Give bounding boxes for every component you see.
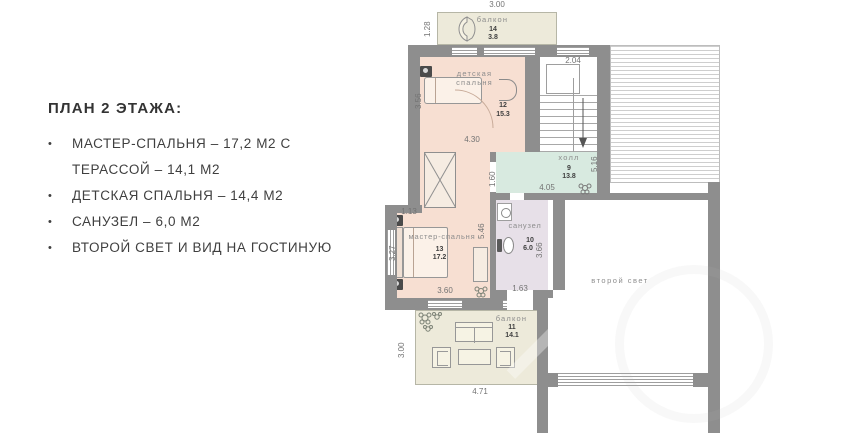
sink-icon — [497, 203, 512, 221]
wall-bath-top-b — [524, 193, 553, 200]
list-item: • МАСТЕР-СПАЛЬНЯ – 17,2 М2 С — [48, 131, 378, 157]
dim-nursery-depth: 3.56 — [414, 85, 423, 117]
armchair-right — [496, 347, 515, 368]
hall-label: холл — [551, 153, 587, 162]
dim-hall-entry: 1.60 — [488, 165, 497, 193]
pier-void-1 — [548, 373, 558, 387]
pier-void-3 — [693, 373, 708, 387]
nursery-label: детская спальня — [437, 69, 512, 87]
window-top-1 — [452, 47, 477, 55]
roof-hatch — [610, 45, 720, 183]
window-top-3 — [557, 47, 589, 55]
wall-left-upper — [408, 45, 420, 205]
list-item-text: САНУЗЕЛ – 6,0 М2 — [72, 209, 200, 235]
list-item-continuation: ТЕРАССОЙ – 14,1 М2 — [48, 157, 378, 183]
master-area: 17.2 — [427, 254, 452, 262]
floor-plan: балкон 14 3.8 детская спальня 12 15.3 хо… — [385, 0, 745, 442]
wall-void-left — [537, 298, 548, 433]
dim-balcony-bottom-depth: 3.00 — [397, 335, 406, 365]
bullet-icon: • — [48, 235, 72, 261]
window-top-2 — [484, 47, 535, 55]
wall-bath-top-a — [496, 193, 510, 200]
hall-area: 13.8 — [557, 173, 581, 181]
door-bath-balcony — [507, 290, 533, 310]
plant-icon — [473, 283, 489, 299]
stair-divider — [573, 78, 574, 152]
door-swing-arc — [453, 88, 495, 132]
feature-list: • МАСТЕР-СПАЛЬНЯ – 17,2 М2 С ТЕРАССОЙ – … — [48, 131, 378, 261]
sofa — [455, 322, 493, 342]
dim-balcony-bottom-width: 4.71 — [455, 387, 505, 396]
dim-nursery-width: 4.30 — [442, 135, 502, 144]
dim-bath-exit: 1.63 — [502, 284, 538, 293]
balcony-bottom-number: 11 — [500, 324, 524, 332]
wall-nursery-stairs — [525, 57, 540, 152]
bath-label: санузел — [499, 221, 551, 230]
balcony-top-area: 3.8 — [481, 34, 505, 42]
dim-hall-depth: 5.16 — [590, 148, 599, 180]
balcony-top-label: балкон — [470, 15, 515, 24]
page-title: ПЛАН 2 ЭТАЖА: — [48, 100, 378, 117]
armchair-left — [432, 347, 451, 368]
dim-master-height: 5.46 — [477, 216, 486, 246]
bullet-icon: • — [48, 183, 72, 209]
wall-corridor-hall-a — [490, 152, 496, 162]
list-item: • ДЕТСКАЯ СПАЛЬНЯ – 14,4 М2 — [48, 183, 378, 209]
dim-master-width: 3.60 — [425, 286, 465, 295]
stair-landing — [546, 64, 580, 94]
coffee-table — [458, 349, 491, 365]
stair-arrow-icon — [577, 98, 589, 148]
dim-stair-width: 2.04 — [555, 56, 591, 65]
dim-balcony-top-depth: 1.28 — [423, 14, 432, 44]
balcony-bottom-label: балкон — [489, 314, 534, 323]
balcony-top-number: 14 — [481, 26, 505, 34]
wall-right — [708, 182, 720, 433]
master-label: мастер-спальня — [397, 232, 487, 241]
dim-hall-width: 4.05 — [522, 183, 572, 192]
master-dresser — [473, 247, 488, 282]
list-item-text: ДЕТСКАЯ СПАЛЬНЯ – 14,4 М2 — [72, 183, 283, 209]
balcony-bottom-area: 14.1 — [500, 332, 524, 340]
bullet-icon: • — [48, 209, 72, 235]
list-item: • ВТОРОЙ СВЕТ И ВИД НА ГОСТИНУЮ — [48, 235, 378, 261]
nursery-area: 15.3 — [491, 111, 515, 119]
nursery-number: 12 — [491, 102, 515, 110]
master-number: 13 — [427, 246, 452, 254]
dim-master-depth: 3.27 — [388, 238, 397, 268]
info-panel: ПЛАН 2 ЭТАЖА: • МАСТЕР-СПАЛЬНЯ – 17,2 М2… — [48, 100, 378, 261]
wardrobe-icon — [424, 152, 456, 208]
dim-master-step: 1.13 — [393, 207, 425, 216]
nursery-nightstand — [420, 66, 432, 77]
void-label: второй свет — [560, 276, 680, 285]
bullet-icon: • — [48, 131, 72, 157]
wall-corridor-hall-b — [490, 192, 496, 298]
window-void-bottom — [558, 373, 693, 387]
dim-bath-depth: 3.66 — [535, 235, 544, 265]
dim-balcony-top-width: 3.00 — [437, 0, 557, 9]
list-item-text: ВТОРОЙ СВЕТ И ВИД НА ГОСТИНУЮ — [72, 235, 332, 261]
plant-icon — [577, 180, 593, 196]
window-bottom-1 — [428, 300, 462, 308]
list-item: • САНУЗЕЛ – 6,0 М2 — [48, 209, 378, 235]
hall-number: 9 — [557, 165, 581, 173]
plants-icon — [417, 310, 445, 336]
room-void — [548, 200, 693, 373]
list-item-text: МАСТЕР-СПАЛЬНЯ – 17,2 М2 С — [72, 131, 291, 157]
toilet-tank — [497, 239, 502, 252]
toilet-icon — [503, 237, 514, 254]
